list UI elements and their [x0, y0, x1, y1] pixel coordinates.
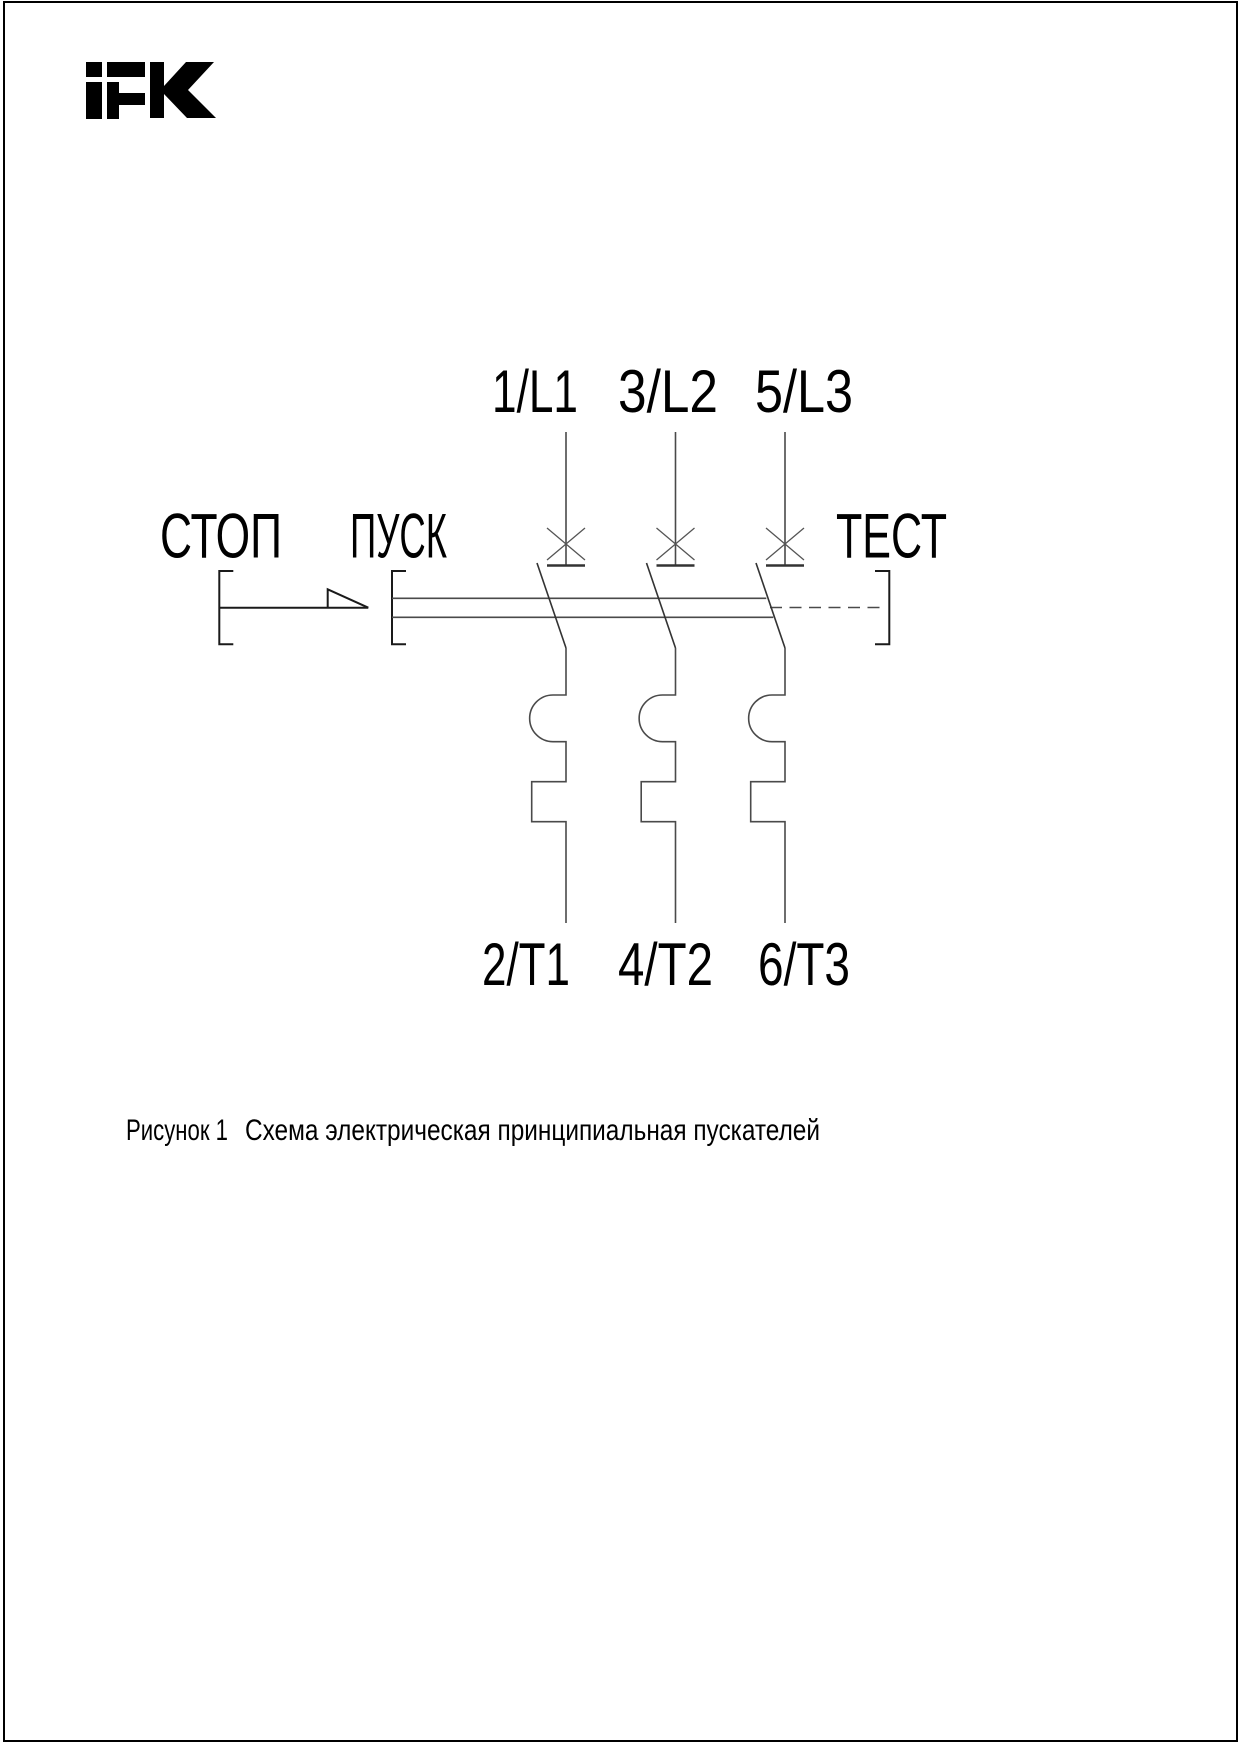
stop-label: СТОП	[160, 502, 282, 572]
thermal-element-path	[530, 648, 566, 923]
terminal-label-top-1: 1/L1	[492, 358, 578, 425]
thermal-element-path	[749, 648, 785, 923]
logo-e-column	[107, 82, 119, 119]
logo-i-dot	[86, 62, 102, 77]
terminal-label-bottom-2: 4/T2	[618, 931, 713, 998]
thermal-element-path	[639, 648, 675, 923]
figure-caption-text: Схема электрическая принципиальная пуска…	[245, 1114, 820, 1147]
terminal-label-bottom-3: 6/T3	[758, 931, 850, 998]
stop-actuator-flag-icon	[328, 589, 369, 607]
figure-caption: Рисунок 1 Схема электрическая принципиал…	[126, 1114, 820, 1147]
terminal-label-top-2: 3/L2	[618, 358, 718, 425]
logo-i-stem	[86, 82, 102, 119]
contact-blade	[537, 563, 566, 648]
schematic-drawing: СТОП ПУСК ТЕСТ	[0, 0, 1244, 1750]
test-button-symbol: ТЕСТ	[770, 502, 947, 645]
start-button-symbol: ПУСК	[350, 502, 773, 645]
iek-logo	[86, 62, 216, 119]
document-page: СТОП ПУСК ТЕСТ	[0, 0, 1244, 1750]
terminal-label-top-3: 5/L3	[755, 358, 853, 425]
pole-3-conductor	[749, 432, 804, 923]
pole-2-conductor	[639, 432, 694, 923]
terminal-label-bottom-1: 2/T1	[482, 931, 570, 998]
pole-1-conductor	[530, 432, 585, 923]
figure-caption-number: Рисунок 1	[126, 1114, 228, 1147]
test-label: ТЕСТ	[836, 502, 947, 572]
stop-button-symbol: СТОП	[160, 502, 368, 645]
start-label: ПУСК	[350, 502, 447, 572]
contact-blade	[756, 563, 785, 648]
logo-e-mid-bar	[119, 93, 145, 105]
contact-blade	[647, 563, 676, 648]
logo-e-top-bar	[107, 62, 145, 77]
start-bracket	[392, 571, 406, 644]
logo-k-glyph	[150, 62, 216, 118]
